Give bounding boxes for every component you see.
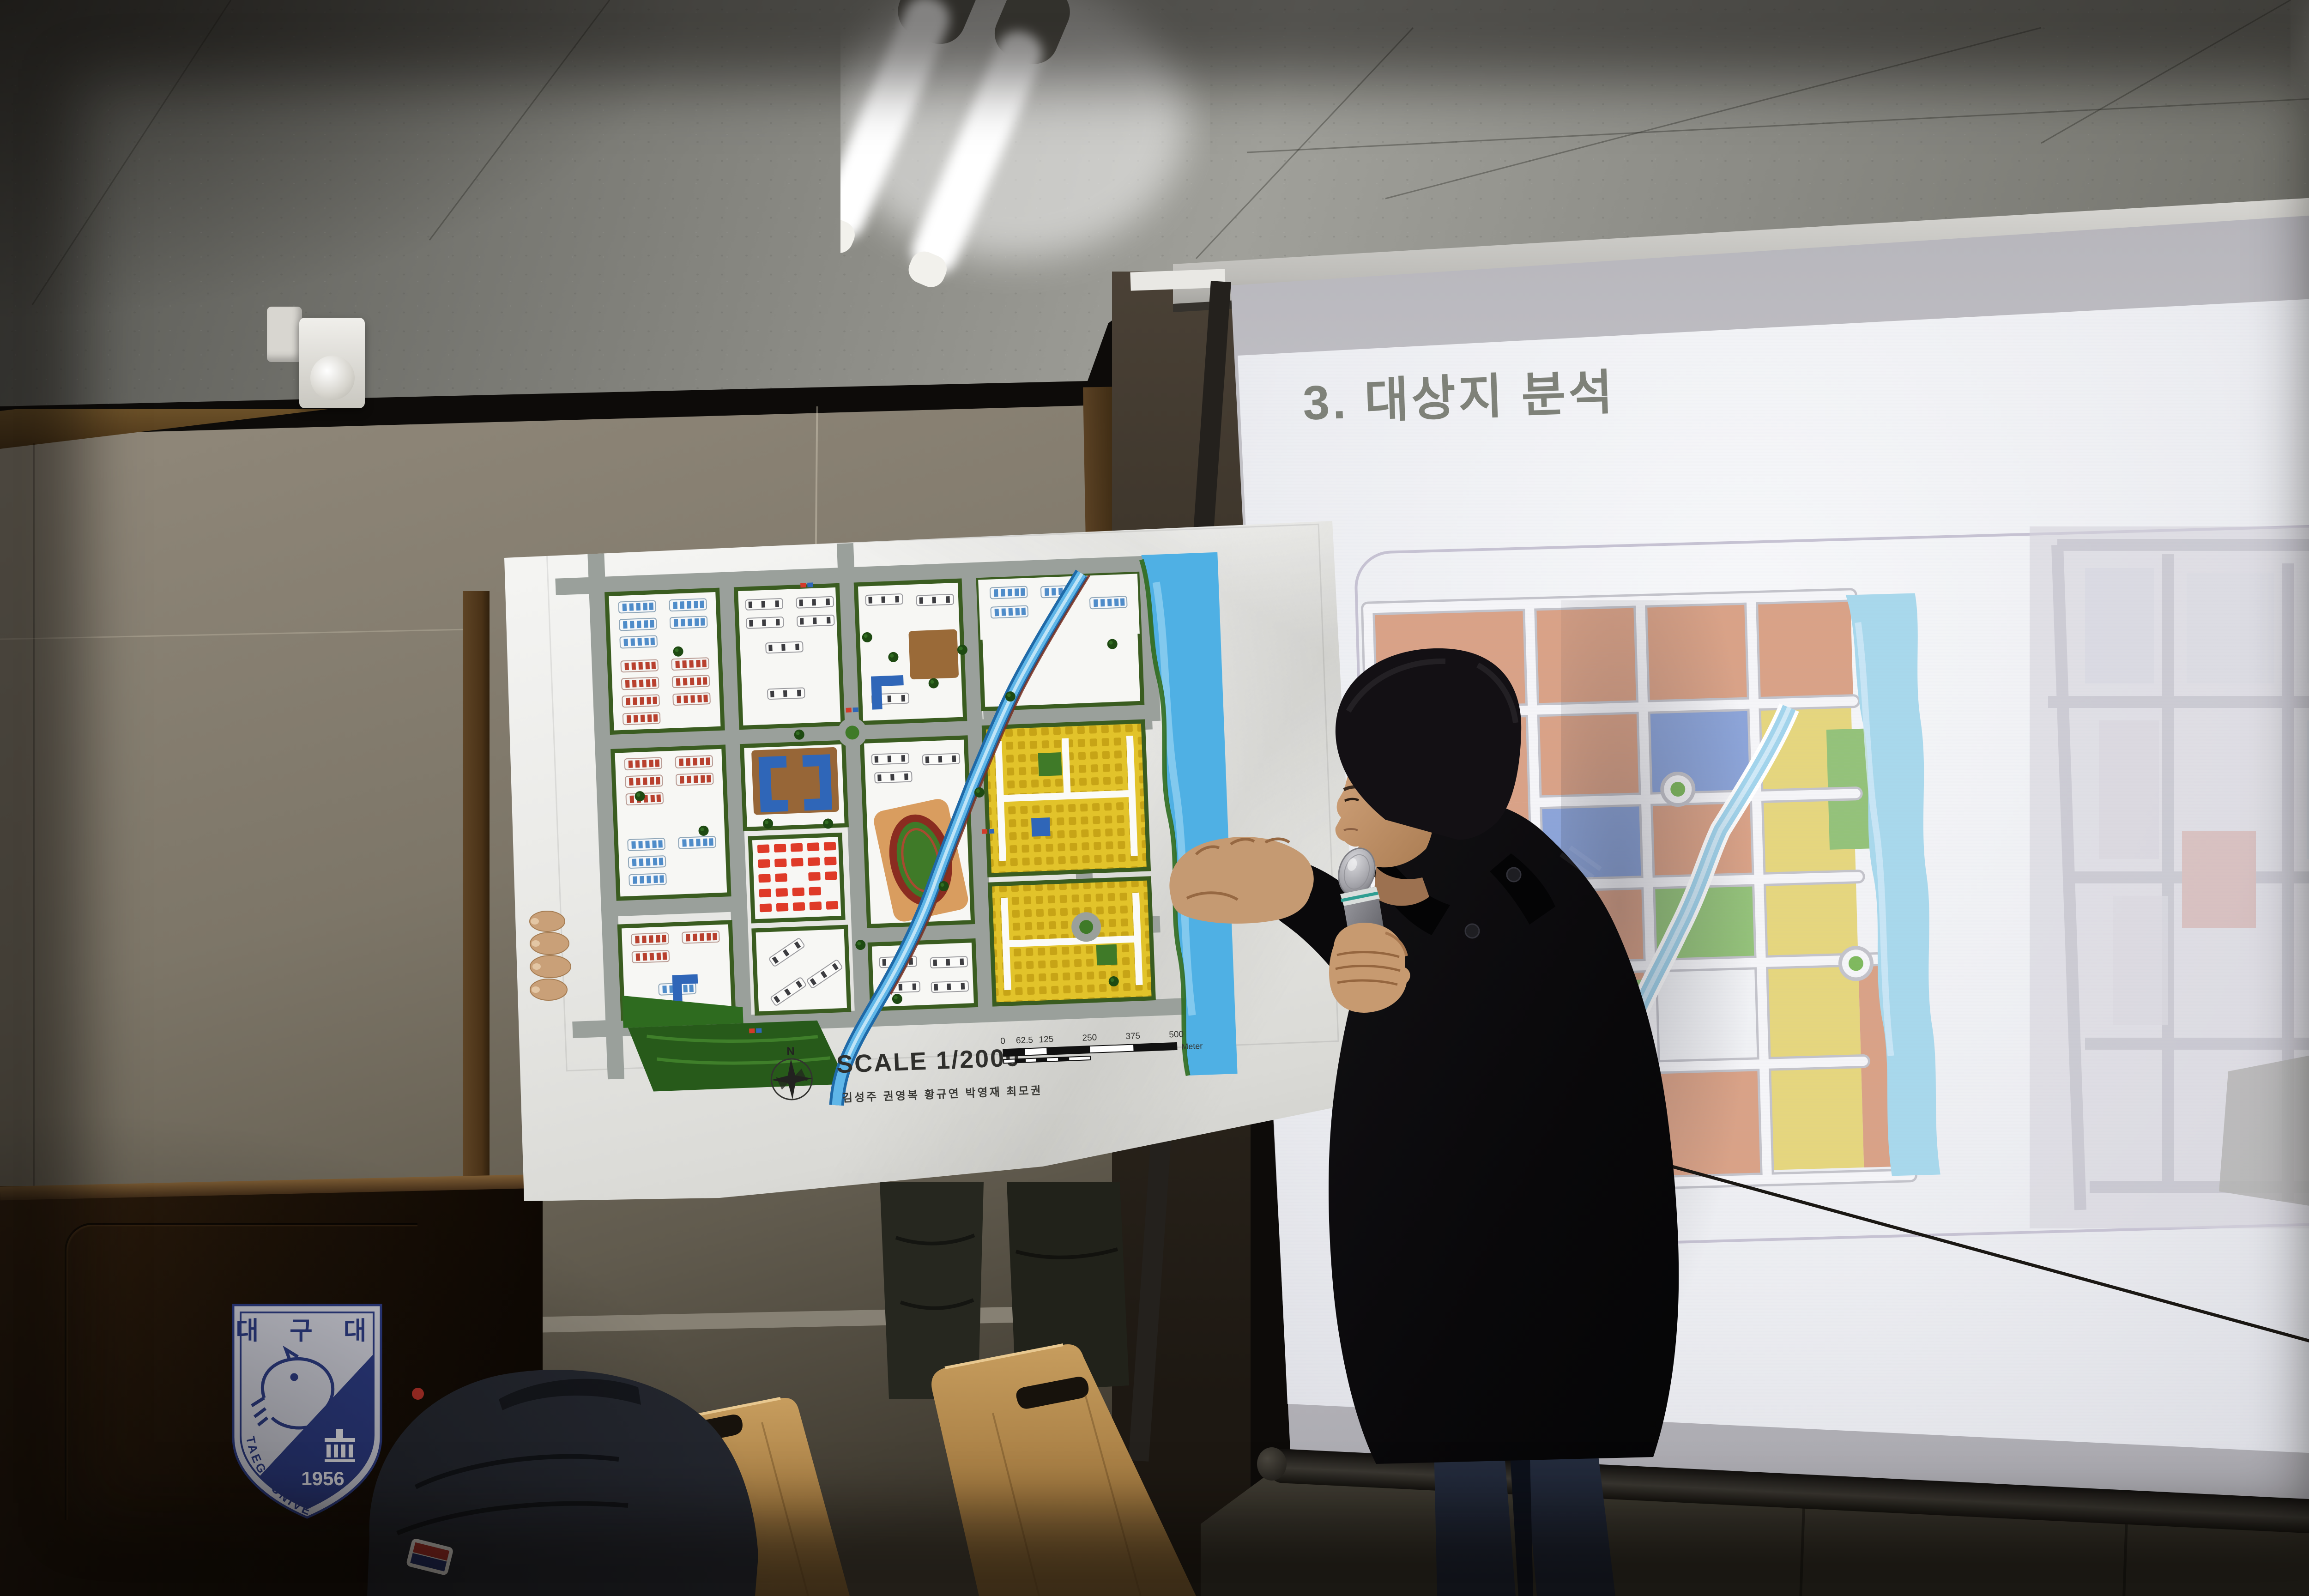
- compass-n: N: [786, 1045, 795, 1058]
- blue-court: [1031, 817, 1051, 837]
- credits: 김성주 권영복 황규연 박영재 최모권: [842, 1084, 1043, 1105]
- ceiling-shadow: [0, 0, 693, 323]
- scalebar-tick: 62.5: [1016, 1035, 1034, 1046]
- wall-seam: [33, 443, 35, 1275]
- park: [628, 1019, 847, 1092]
- cap-red-dot: [412, 1388, 424, 1400]
- audience-person-cap: [323, 1339, 785, 1596]
- scalebar-tick: 250: [1082, 1033, 1097, 1043]
- corner-light-fixture: [2291, 0, 2309, 139]
- scalebar-tick: 125: [1039, 1034, 1053, 1045]
- motion-sensor-dome: [310, 356, 355, 400]
- green-court: [1096, 944, 1118, 966]
- ceiling-seam: [1385, 28, 2041, 199]
- motion-sensor-bracket: [267, 307, 302, 362]
- holder-hand: [526, 907, 577, 1009]
- green-court: [1038, 752, 1062, 776]
- coat-button: [1465, 924, 1479, 938]
- scale-label: SCALE 1/2000: [836, 1044, 1021, 1078]
- presenter: [1127, 637, 1727, 1596]
- scalebar-tick: 0: [1000, 1036, 1005, 1046]
- ceiling-seam: [1247, 95, 2309, 152]
- coat-button: [1507, 868, 1521, 882]
- presenter-fist: [1169, 837, 1313, 924]
- ceiling-seam: [2041, 0, 2291, 143]
- presentation-room-photo: 3. 대상지 분석: [0, 0, 2309, 1596]
- ceiling-seam: [1196, 28, 1413, 259]
